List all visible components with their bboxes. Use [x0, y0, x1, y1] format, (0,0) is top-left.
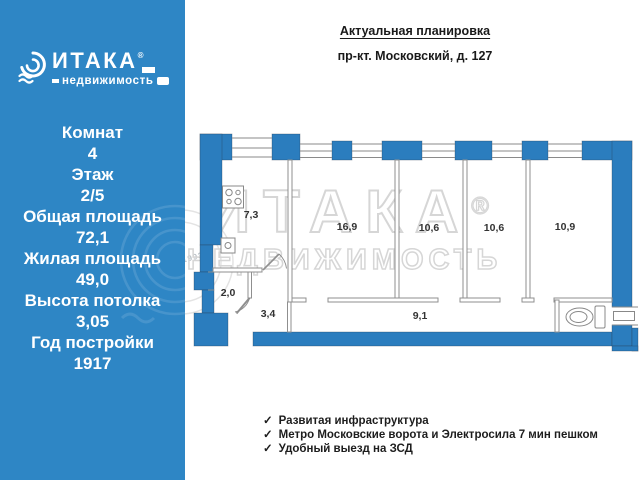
room-label-corridor: 9,1: [413, 310, 428, 322]
spec-total-area-value: 72,1: [0, 227, 185, 248]
spec-ceiling-label: Высота потолка: [0, 290, 185, 311]
feature-text: Развитая инфраструктура: [279, 415, 429, 427]
spec-living-area-value: 49,0: [0, 269, 185, 290]
spec-year-value: 1917: [0, 353, 185, 374]
kitchen-door-leaf: [263, 254, 279, 270]
brand-name-text: ИТАКА: [52, 48, 138, 73]
stove-icon: [223, 186, 244, 208]
spec-ceiling-value: 3,05: [0, 311, 185, 332]
entrance-door-leaf: [614, 312, 635, 321]
check-icon: ✓: [263, 415, 273, 427]
property-specs: Комнат 4 Этаж 2/5 Общая площадь 72,1 Жил…: [0, 122, 185, 374]
feature-item: ✓Удобный выезд на ЗСД: [263, 443, 598, 457]
feature-item: ✓Метро Московские ворота и Электросила 7…: [263, 429, 598, 443]
registered-mark: ®: [138, 51, 144, 60]
brand-subtitle: недвижимость: [62, 75, 154, 87]
spec-floor-label: Этаж: [0, 164, 185, 185]
room-label-room1: 16,9: [337, 221, 358, 233]
room-label-bath: 2,0: [221, 287, 236, 299]
brand-subtitle-row: недвижимость: [52, 75, 169, 87]
spec-rooms-label: Комнат: [0, 122, 185, 143]
header: Актуальная планировка пр-кт. Московский,…: [240, 24, 590, 63]
logo-right-block: [157, 77, 169, 85]
brand-name: ИТАКА®: [52, 48, 143, 74]
logo-underscore-bar: [142, 67, 155, 73]
wave-logo-icon: [18, 50, 48, 84]
brand-logo: ИТАКА® недвижимость: [18, 48, 178, 94]
room-label-room4: 10,9: [555, 221, 576, 233]
sink-icon: [221, 238, 235, 253]
logo-left-bar: [52, 79, 59, 83]
room-label-room2: 10,6: [419, 222, 440, 234]
floor-plan: 7,3 16,9 10,6 10,6 10,9 2,0 3,4 9,1: [185, 125, 640, 360]
spec-year-label: Год постройки: [0, 332, 185, 353]
room-label-kitchen: 7,3: [244, 209, 259, 221]
room-label-hall: 3,4: [261, 308, 276, 320]
feature-text: Метро Московские ворота и Электросила 7 …: [279, 429, 598, 441]
spec-living-area-label: Жилая площадь: [0, 248, 185, 269]
interior-walls: [213, 160, 612, 332]
spec-rooms-value: 4: [0, 143, 185, 164]
address: пр-кт. Московский, д. 127: [240, 49, 590, 63]
feature-item: ✓Развитая инфраструктура: [263, 415, 598, 429]
spec-total-area-label: Общая площадь: [0, 206, 185, 227]
toilet-icon: [566, 306, 605, 328]
check-icon: ✓: [263, 429, 273, 441]
sidebar: ИТАКА® недвижимость Комнат 4 Этаж 2/5 Об…: [0, 0, 185, 480]
features-list: ✓Развитая инфраструктура ✓Метро Московск…: [263, 415, 598, 456]
feature-text: Удобный выезд на ЗСД: [279, 443, 413, 455]
room-label-room3: 10,6: [484, 222, 505, 234]
page-title: Актуальная планировка: [240, 24, 590, 38]
check-icon: ✓: [263, 443, 273, 455]
spec-floor-value: 2/5: [0, 185, 185, 206]
